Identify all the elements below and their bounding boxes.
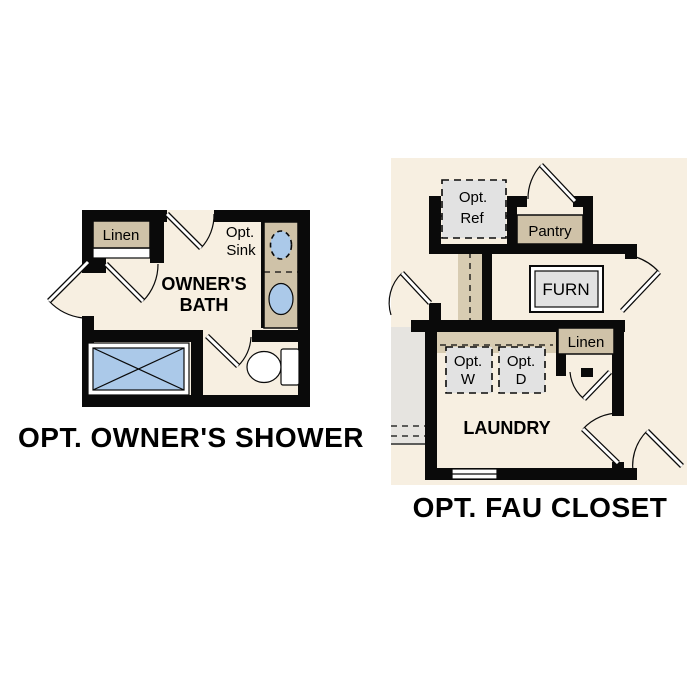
linen-label: Linen <box>103 227 140 244</box>
toilet-tank <box>281 349 299 385</box>
wall-segment <box>429 303 441 322</box>
wall-segment <box>82 395 310 407</box>
wall-segment <box>93 258 106 273</box>
wall-segment <box>625 254 637 259</box>
optional-sink <box>271 231 292 259</box>
fau-closet-plan: Opt. Ref Pantry FURN Linen Opt. W Opt. D <box>389 158 687 523</box>
room-label-line2: BATH <box>180 295 229 315</box>
shower <box>88 343 189 395</box>
furnace-unit: FURN <box>530 266 603 312</box>
wall-segment <box>82 330 203 342</box>
room-label-line1: OWNER'S <box>161 274 246 294</box>
adjacent-stair-area <box>391 327 425 445</box>
wall-segment <box>429 196 441 252</box>
toilet <box>247 349 299 385</box>
opt-d-label-line2: D <box>516 371 527 388</box>
opt-d-label-line1: Opt. <box>507 353 535 370</box>
wall-segment <box>429 244 637 254</box>
wall-segment <box>507 196 527 207</box>
wall-segment <box>191 342 203 396</box>
opt-ref-label-line2: Ref <box>460 210 484 227</box>
opt-sink-label-line1: Opt. <box>226 224 254 241</box>
wall-segment <box>581 368 593 377</box>
wall-segment <box>583 196 593 244</box>
linen-label: Linen <box>568 334 605 351</box>
linen-shelf <box>93 248 150 258</box>
sink <box>269 284 293 315</box>
wall-segment <box>612 462 624 475</box>
wall-segment <box>482 252 492 322</box>
opt-ref-label-line1: Opt. <box>459 189 487 206</box>
toilet-bowl <box>247 352 281 383</box>
wall-segment <box>214 210 310 222</box>
floorplan-canvas: Linen Opt. Sink <box>0 0 687 687</box>
left-plan-title: OPT. OWNER'S SHOWER <box>18 422 364 453</box>
right-plan-title: OPT. FAU CLOSET <box>413 492 668 523</box>
stair-area <box>391 327 425 445</box>
wall-segment <box>150 210 164 263</box>
pantry-label: Pantry <box>528 223 572 240</box>
wall-segment <box>425 332 437 480</box>
room-label: LAUNDRY <box>463 418 550 438</box>
opt-w-label-line2: W <box>461 371 476 388</box>
wall-segment <box>252 330 310 342</box>
wall-segment <box>298 210 310 407</box>
opt-w-label-line1: Opt. <box>454 353 482 370</box>
vanity <box>261 222 298 328</box>
furn-label: FURN <box>542 280 589 299</box>
window <box>452 469 497 479</box>
opt-sink-label-line2: Sink <box>226 242 256 259</box>
vanity-edge <box>261 222 264 328</box>
